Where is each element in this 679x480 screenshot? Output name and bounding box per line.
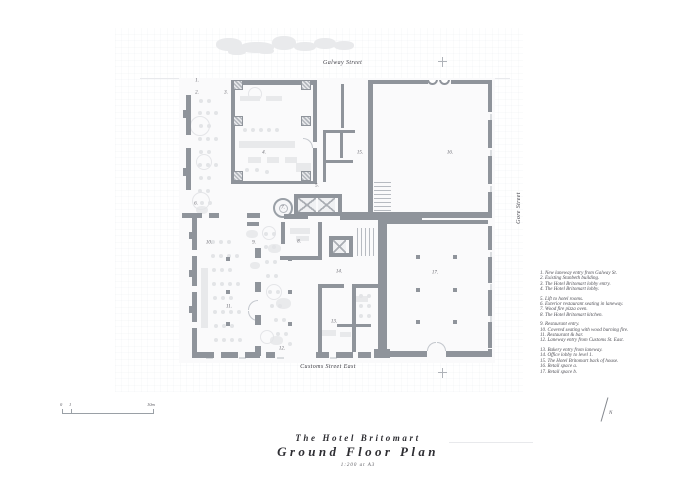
room-number: 2. bbox=[195, 91, 199, 96]
legend-item: 17. Retail space b. bbox=[540, 370, 674, 375]
scale-bar-one: 1 bbox=[69, 402, 71, 407]
scale-bar-zero: 0 bbox=[60, 402, 62, 407]
room-number: 14. bbox=[336, 270, 342, 275]
drawing-scale: 1:200 at A3 bbox=[208, 463, 508, 468]
reference-line bbox=[449, 442, 533, 443]
room-number: 7. bbox=[281, 206, 285, 211]
north-arrow-icon bbox=[601, 397, 609, 421]
legend-item: 4. The Hotel Britomart lobby. bbox=[540, 287, 674, 292]
room-number: 6. bbox=[194, 202, 198, 207]
scale-bar-end: 10m bbox=[147, 402, 155, 407]
title-block: The Hotel Britomart Ground Floor Plan 1:… bbox=[208, 433, 508, 468]
street-label-gore: Gore Street bbox=[516, 183, 522, 233]
legend-group: 1. New laneway entry from Galway St.2. E… bbox=[540, 271, 674, 293]
street-label-galway: Galway Street bbox=[323, 60, 362, 66]
room-number: 12. bbox=[279, 347, 285, 352]
scale-bar: 0 1 10m bbox=[55, 400, 165, 418]
room-number: 10. bbox=[206, 241, 212, 246]
room-number: 16. bbox=[447, 151, 453, 156]
room-number: 17. bbox=[432, 271, 438, 276]
legend-group: 9. Restaurant entry.10. Covered seating … bbox=[540, 322, 674, 344]
room-number: 15. bbox=[357, 151, 363, 156]
legend-item: 8. The Hotel Britomart kitchen. bbox=[540, 313, 674, 318]
room-number: 11. bbox=[226, 305, 232, 310]
room-number: 9. bbox=[252, 241, 256, 246]
room-number: 1. bbox=[195, 79, 199, 84]
legend: 1. New laneway entry from Galway St.2. E… bbox=[540, 271, 674, 379]
north-label: N bbox=[609, 411, 612, 416]
drawing-sheet: 1.2.3.4.5.6.7.8.9.10.11.12.13.14.15.16.1… bbox=[0, 0, 679, 480]
legend-group: 5. Lift to hotel rooms.6. Exterior resta… bbox=[540, 297, 674, 319]
section-marker-bottom bbox=[438, 368, 448, 380]
room-number: 3. bbox=[224, 91, 228, 96]
section-marker-top bbox=[438, 57, 448, 69]
street-label-customs: Customs Street East bbox=[282, 364, 374, 370]
room-number: 5. bbox=[315, 184, 319, 189]
legend-item: 12. Laneway entry from Customs St. East. bbox=[540, 338, 674, 343]
drawing-title: Ground Floor Plan bbox=[208, 444, 508, 460]
room-number: 8. bbox=[297, 240, 301, 245]
room-number: 4. bbox=[262, 151, 266, 156]
room-number: 13. bbox=[331, 320, 337, 325]
north-arrow: N bbox=[592, 394, 622, 426]
legend-group: 13. Bakery entry from laneway.14. Office… bbox=[540, 348, 674, 375]
